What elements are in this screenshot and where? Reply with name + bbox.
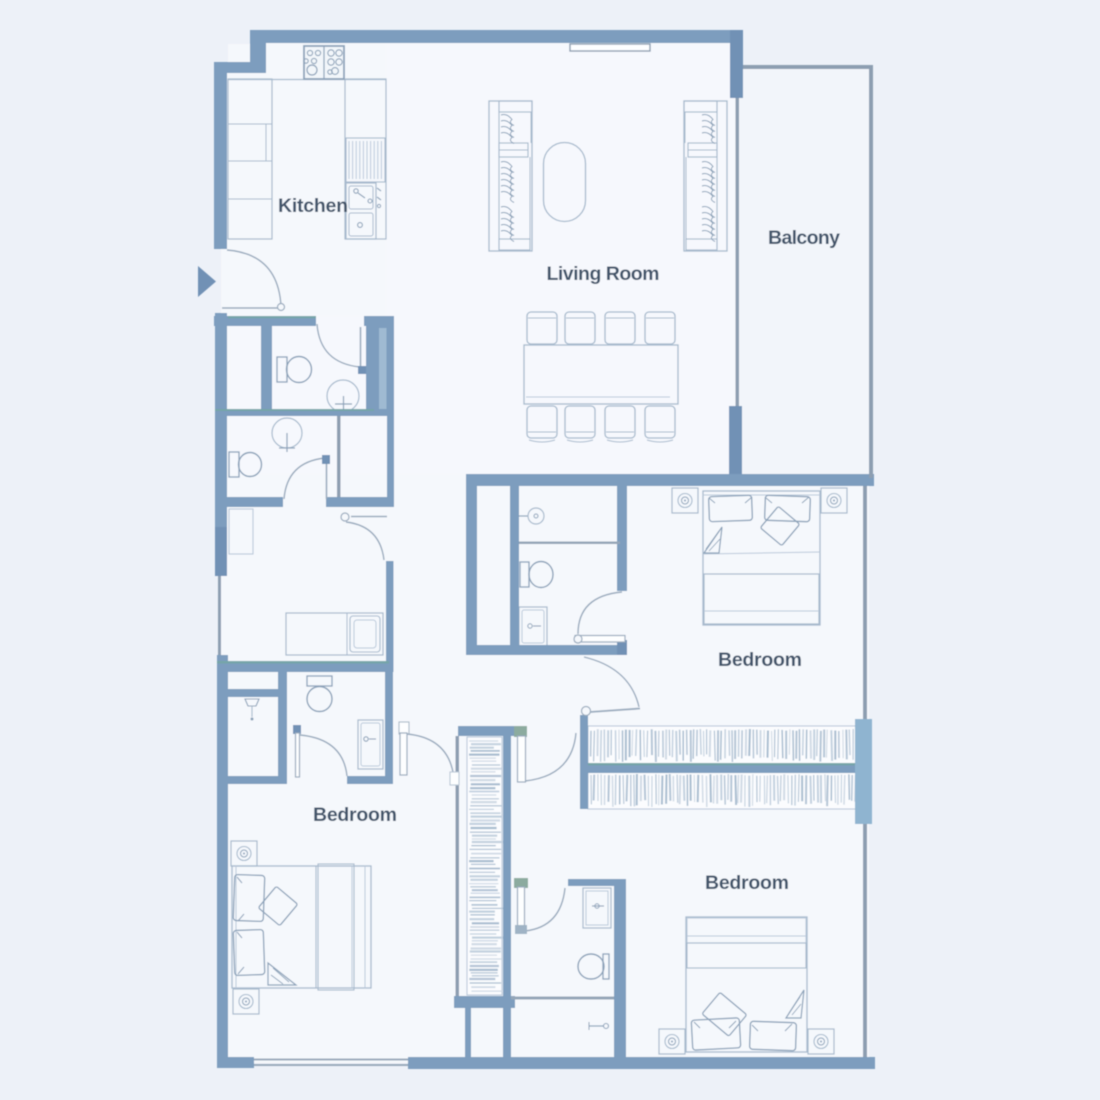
svg-text:Bedroom: Bedroom bbox=[313, 804, 397, 826]
svg-text:Kitchen: Kitchen bbox=[278, 195, 348, 217]
svg-text:Living Room: Living Room bbox=[547, 263, 660, 285]
svg-text:Bedroom: Bedroom bbox=[718, 649, 802, 671]
svg-text:Balcony: Balcony bbox=[768, 227, 840, 249]
svg-text:Bedroom: Bedroom bbox=[705, 872, 789, 894]
